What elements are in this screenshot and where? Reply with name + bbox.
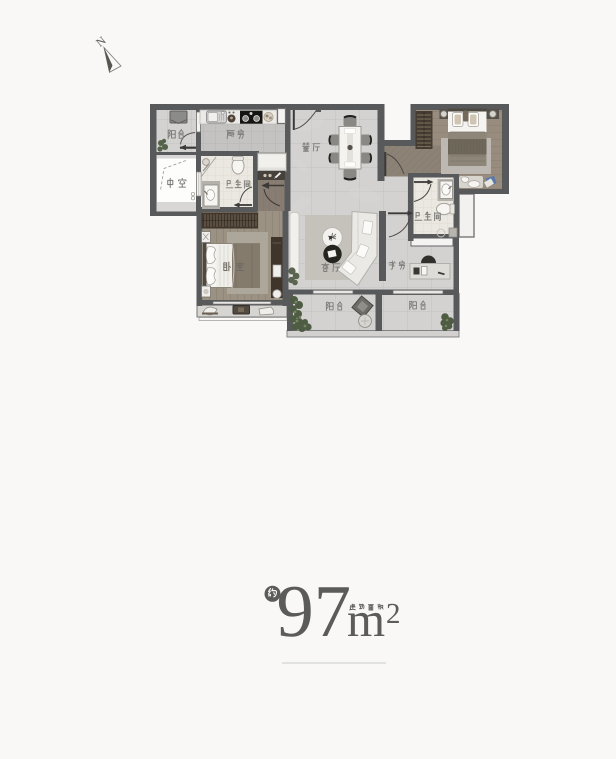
svg-text:2: 2 xyxy=(386,598,401,630)
svg-text:97: 97 xyxy=(277,571,352,653)
svg-text:m: m xyxy=(347,592,385,647)
